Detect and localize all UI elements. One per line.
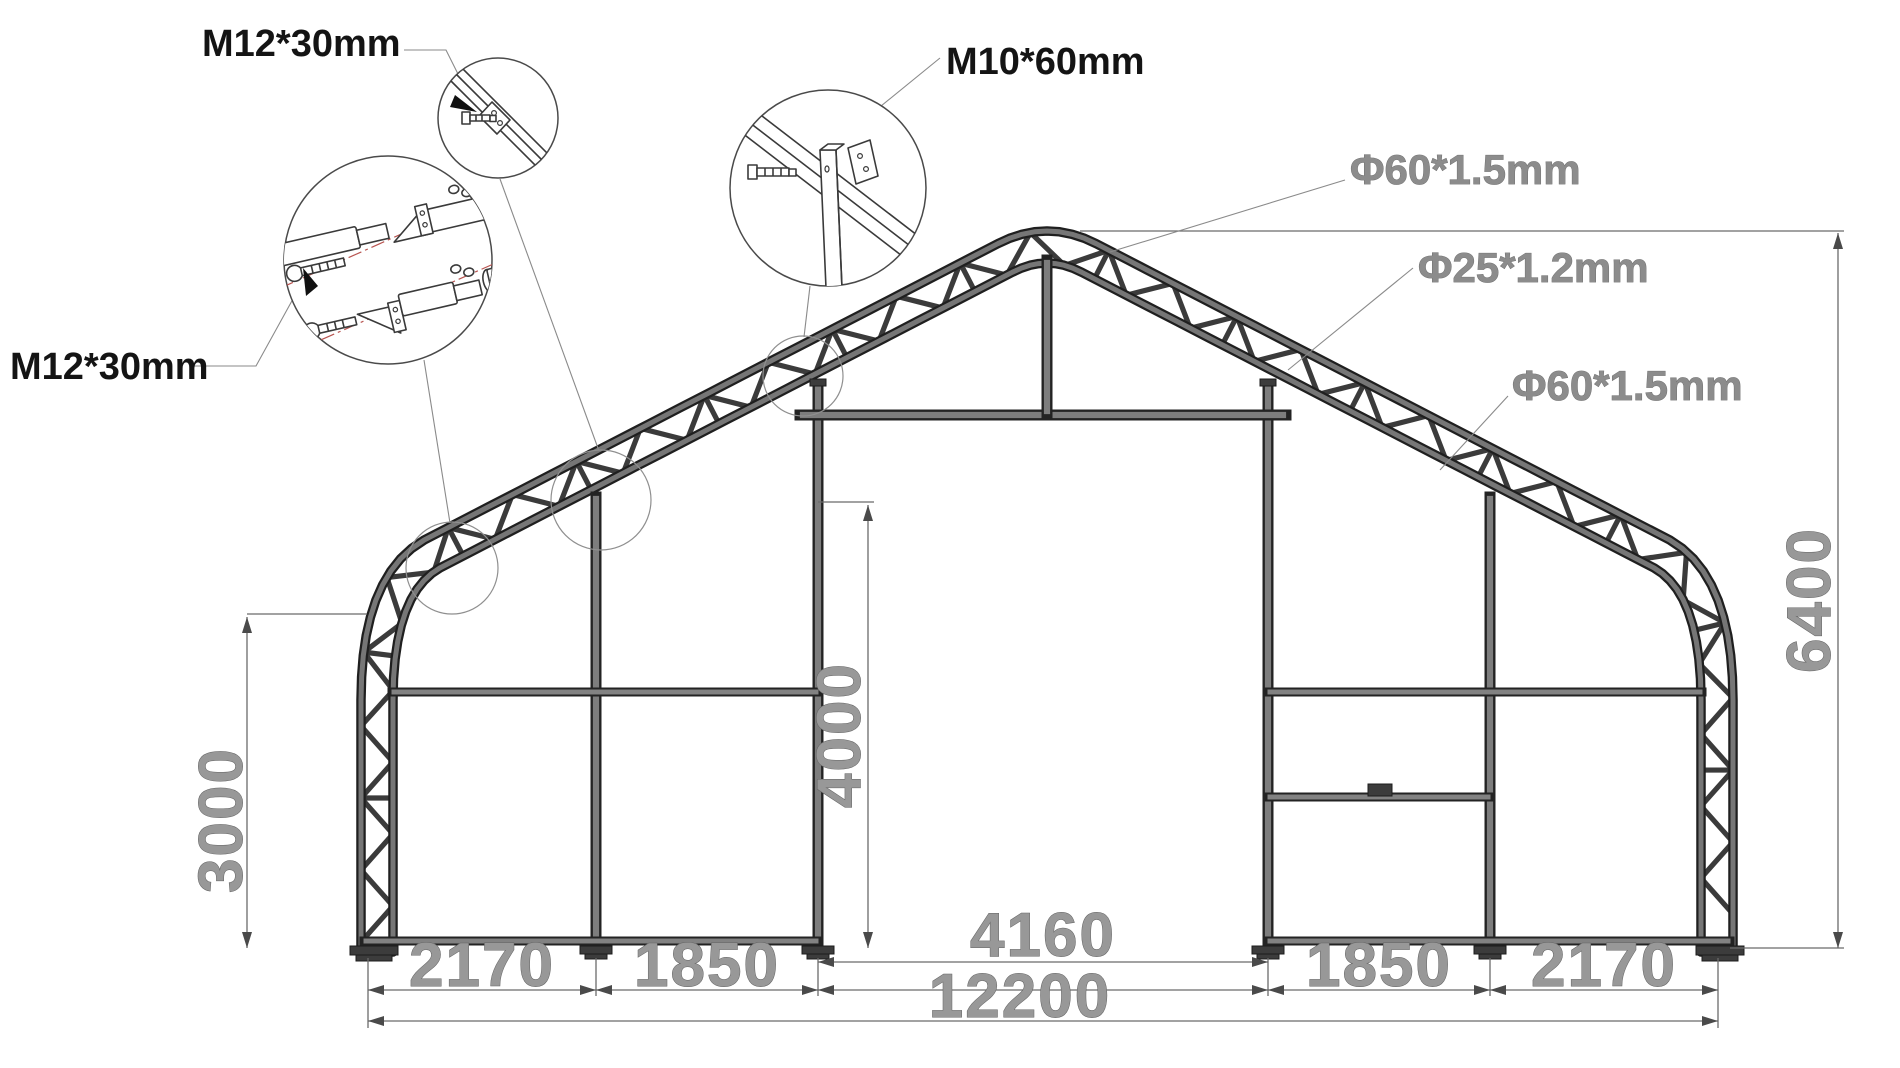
detail-circle-brace <box>720 90 926 288</box>
detail-circle-splice <box>242 156 554 364</box>
truss-web-member <box>1701 734 1733 770</box>
dim-bay-left-inner: 1850 <box>634 931 780 1000</box>
truss-web-member <box>1701 842 1733 878</box>
callout-m12-top: M12*30mm <box>202 23 401 65</box>
dim-bay-left-outer: 2170 <box>409 931 555 1000</box>
truss-web-member <box>768 362 815 374</box>
dim-bay-right-inner: 1850 <box>1306 931 1452 1000</box>
technical-drawing: 2170 1850 4160 1850 2170 12200 3000 4000… <box>0 0 1900 1068</box>
door-post-right-cap <box>1260 379 1276 386</box>
truss-web-member <box>1254 349 1301 361</box>
truss-web-member <box>361 834 393 870</box>
dim-door-height: 4000 <box>805 662 874 808</box>
truss-web-member <box>1126 283 1173 295</box>
callout-phi25-web: Φ25*1.2mm <box>1418 244 1649 291</box>
truss-web-member <box>361 762 393 798</box>
truss-web-member <box>1701 698 1733 734</box>
truss-web-member <box>1701 770 1733 806</box>
truss-web-member <box>361 726 393 762</box>
door-post-left-cap <box>810 379 826 386</box>
truss-web-member <box>1701 806 1733 842</box>
shelter-frame-drawing: 2170 1850 4160 1850 2170 12200 3000 4000… <box>0 0 1900 1068</box>
rail-latch-block <box>1368 784 1392 796</box>
truss-web-member <box>361 870 393 906</box>
callout-m10: M10*60mm <box>946 41 1145 83</box>
truss-web-member <box>640 428 687 440</box>
dim-total-span: 12200 <box>929 962 1111 1031</box>
detail-circle-bracket <box>438 58 560 178</box>
dim-eave-height: 3000 <box>187 747 256 893</box>
truss-web-member <box>1510 482 1557 494</box>
callout-phi60-side: Φ60*1.5mm <box>1512 362 1743 409</box>
dim-bay-right-outer: 2170 <box>1531 931 1677 1000</box>
truss-web-member <box>1382 416 1429 428</box>
callout-m12-left: M12*30mm <box>10 346 209 388</box>
truss-web-member <box>361 798 393 834</box>
dim-ridge-height: 6400 <box>1775 527 1844 673</box>
truss-web-member <box>896 296 943 308</box>
callout-phi60-roof: Φ60*1.5mm <box>1350 146 1581 193</box>
truss-web-member <box>1701 878 1733 914</box>
dim-door-width: 4160 <box>970 901 1116 970</box>
